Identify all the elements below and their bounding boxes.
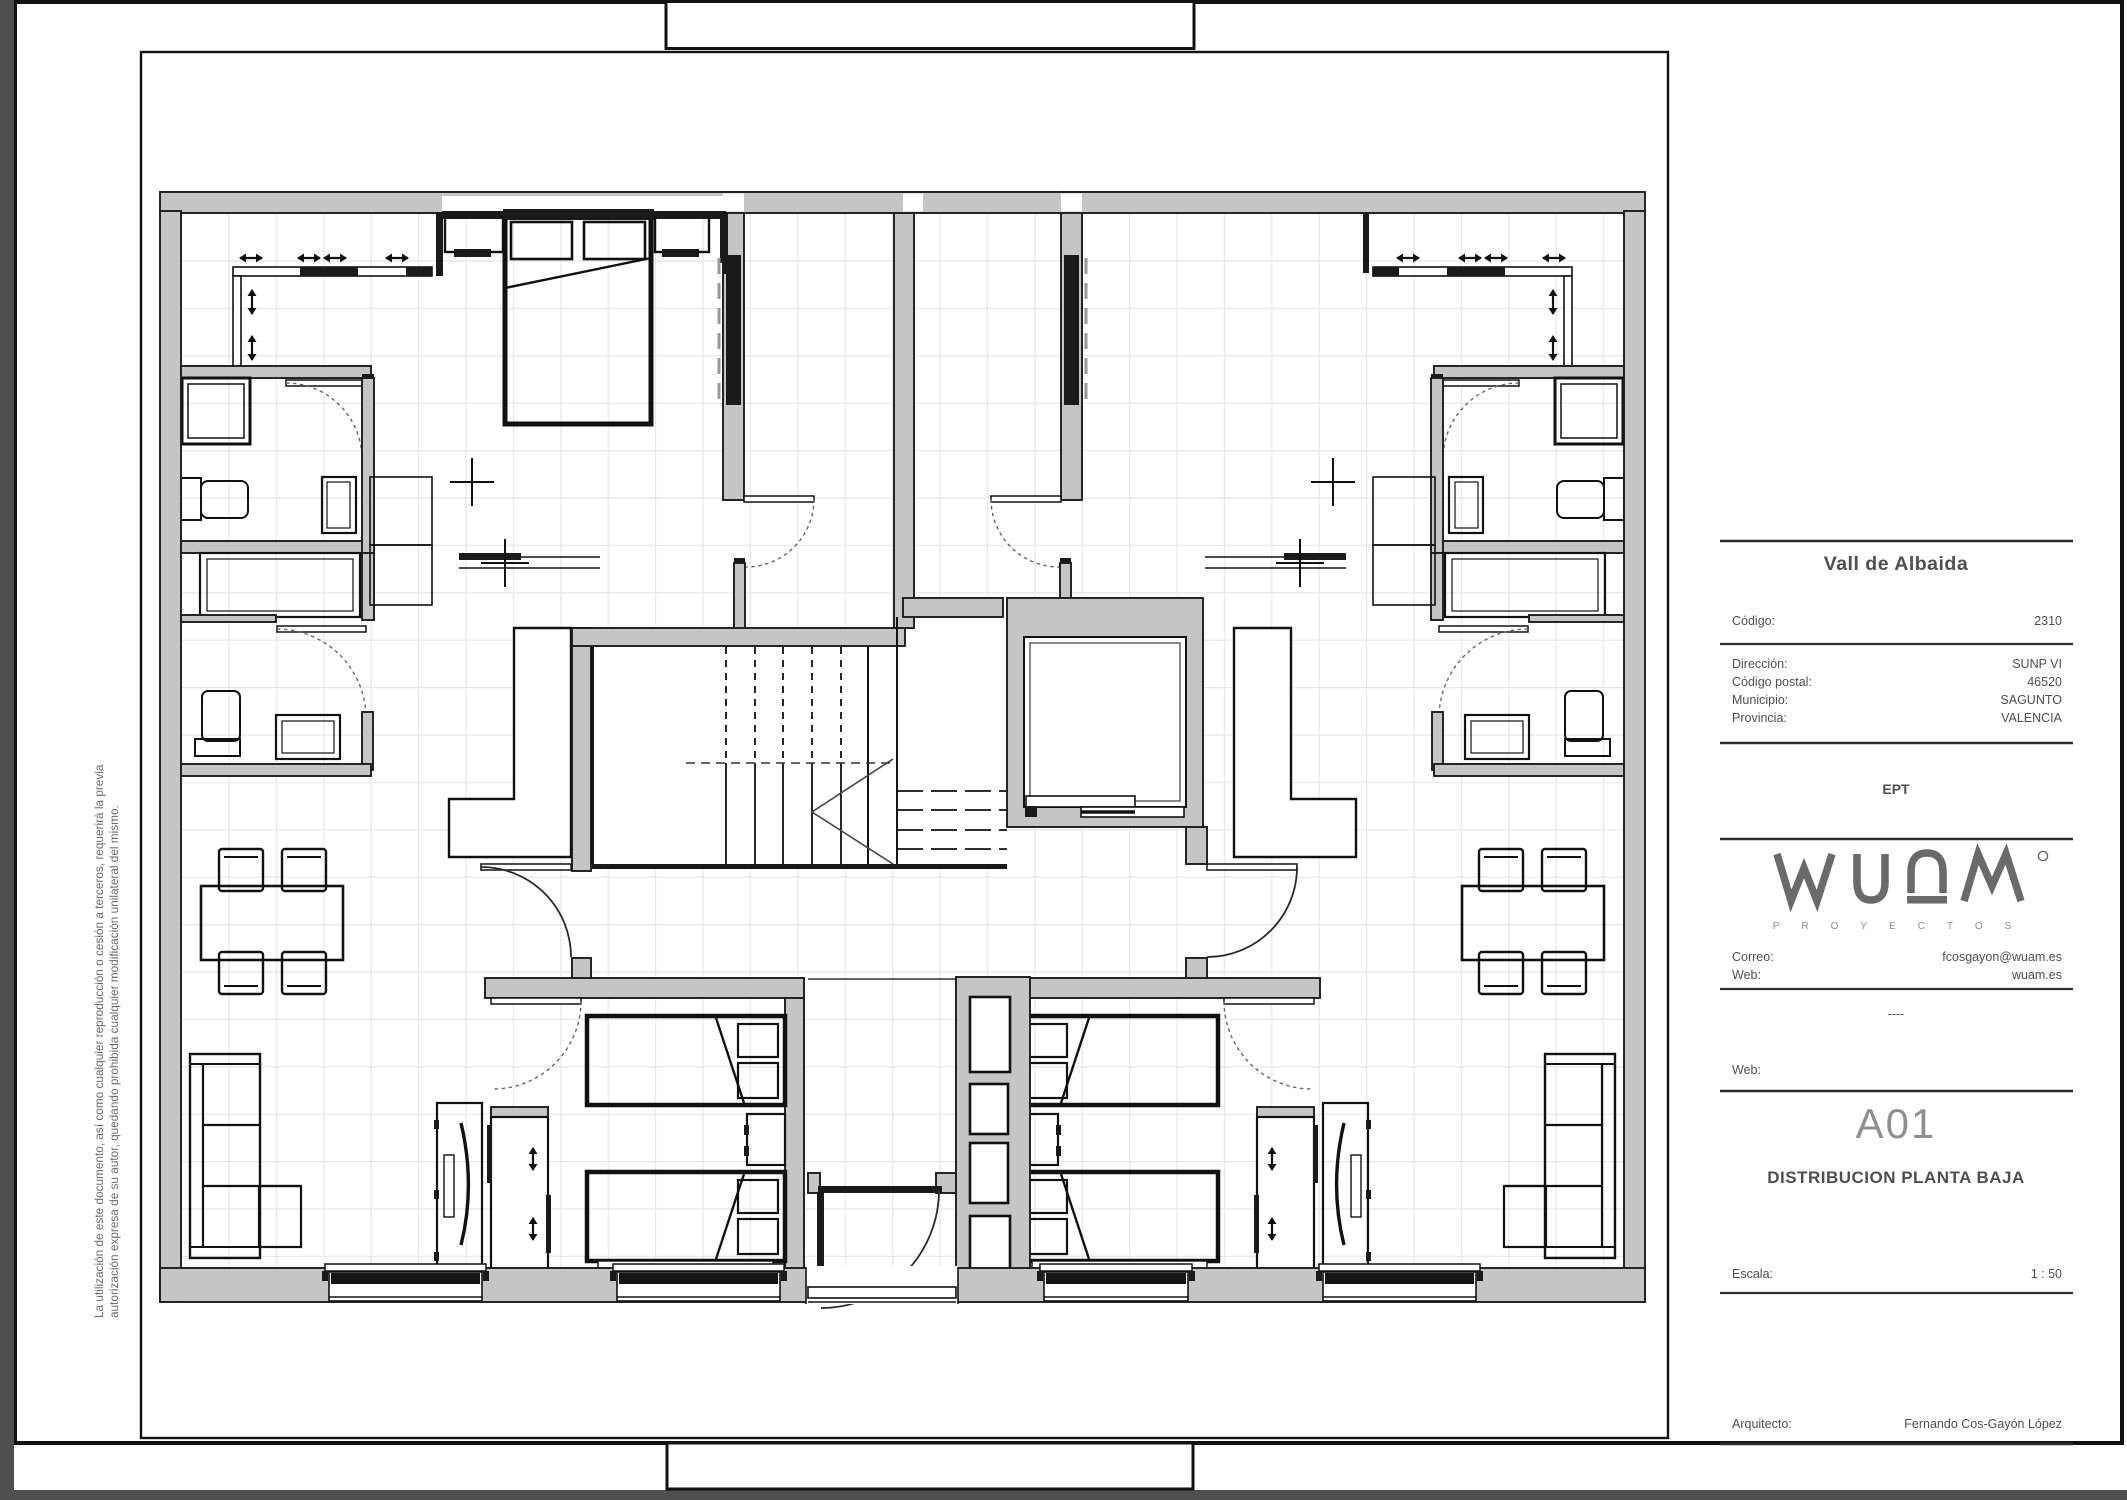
svg-text:Código postal:: Código postal: [1732,675,1812,689]
svg-text:Provincia:: Provincia: [1732,711,1787,725]
svg-text:2310: 2310 [2034,614,2062,628]
svg-text:Web:: Web: [1732,968,1761,982]
svg-text:EPT: EPT [1882,781,1910,797]
svg-text:SAGUNTO: SAGUNTO [2000,693,2062,707]
svg-text:wuam.es: wuam.es [2011,968,2062,982]
svg-text:Arquitecto:: Arquitecto: [1732,1417,1792,1431]
svg-text:----: ---- [1888,1007,1905,1021]
svg-text:VALENCIA: VALENCIA [2001,711,2063,725]
svg-text:fcosgayon@wuam.es: fcosgayon@wuam.es [1942,950,2062,964]
svg-text:SUNP VI: SUNP VI [2012,657,2062,671]
svg-text:DISTRIBUCION PLANTA BAJA: DISTRIBUCION PLANTA BAJA [1767,1168,2025,1187]
svg-text:A01: A01 [1856,1100,1937,1147]
svg-text:46520: 46520 [2027,675,2062,689]
svg-text:Web:: Web: [1732,1063,1761,1077]
svg-text:Código:: Código: [1732,614,1775,628]
svg-text:Dirección:: Dirección: [1732,657,1788,671]
svg-text:Municipio:: Municipio: [1732,693,1788,707]
svg-text:Fernando Cos-Gayón López: Fernando Cos-Gayón López [1904,1417,2062,1431]
svg-text:La utilización de este documen: La utilización de este documento, así co… [92,764,106,1318]
svg-text:Vall de Albaida: Vall de Albaida [1824,553,1968,575]
svg-text:1 : 50: 1 : 50 [2031,1267,2062,1281]
svg-text:PROYECTOS: PROYECTOS [1773,921,2034,932]
svg-text:Correo:: Correo: [1732,950,1774,964]
svg-text:autorización expresa de su aut: autorización expresa de su autor, quedan… [107,805,121,1318]
svg-text:Escala:: Escala: [1732,1267,1773,1281]
